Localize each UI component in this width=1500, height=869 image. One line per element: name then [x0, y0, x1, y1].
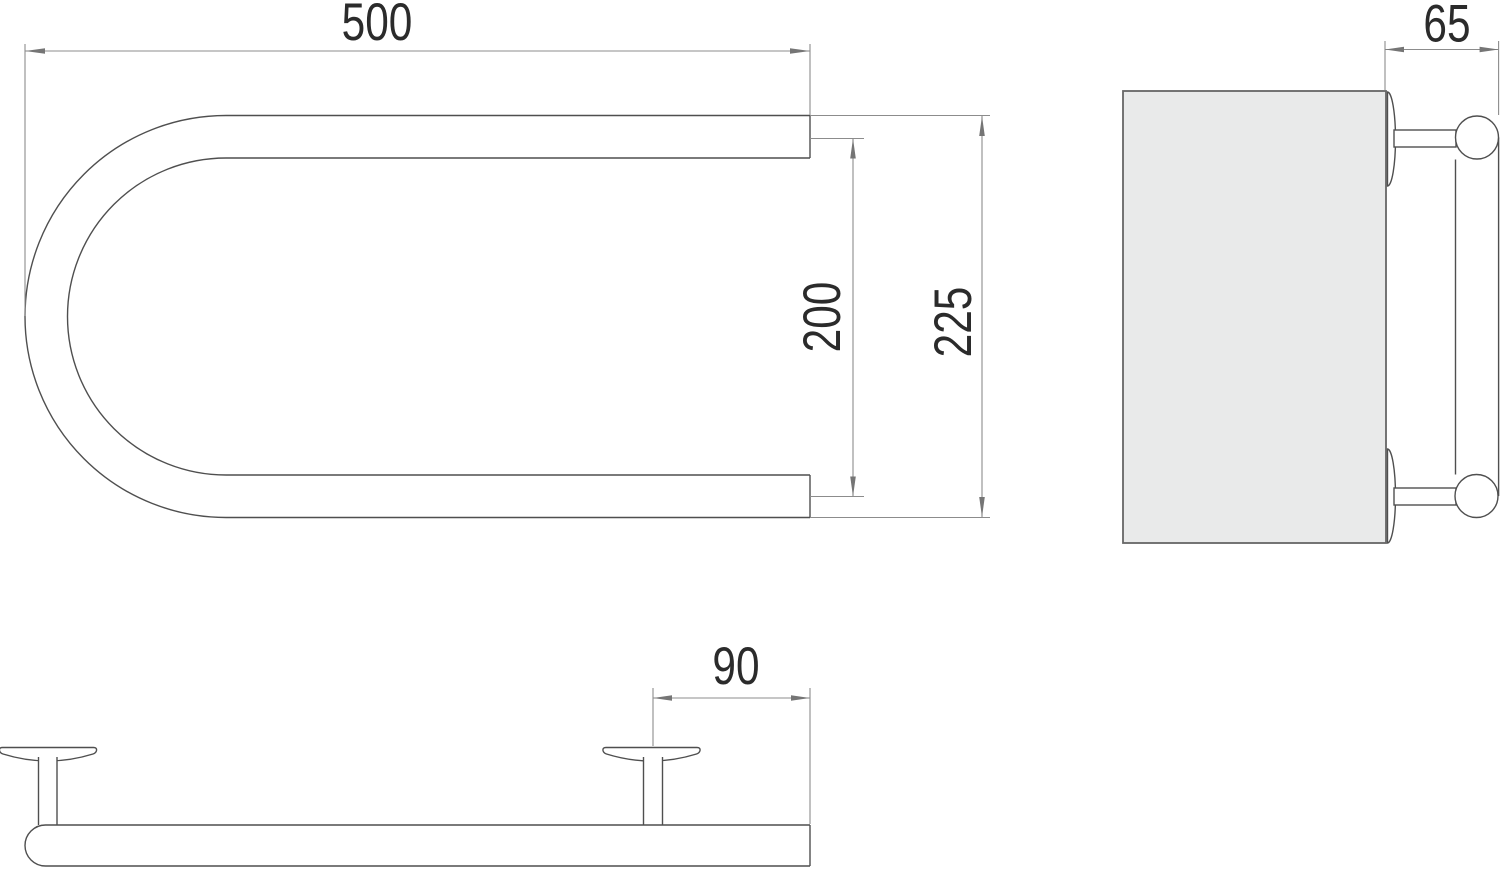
dim-offset-arrow-right: [1480, 47, 1499, 53]
dim-bracket-arrow-right: [791, 695, 810, 701]
bracket-stem-right-fill: [644, 756, 663, 825]
front-view: 90: [0, 638, 810, 866]
side-view: 65: [1123, 0, 1499, 543]
dim-height-arrow-top: [979, 116, 985, 136]
tube-section-bottom: [1455, 475, 1498, 518]
dim-axis-spacing: 200: [794, 139, 864, 497]
bracket-stem-bottom: [1394, 488, 1456, 505]
dim-height-arrow-bottom: [979, 497, 985, 517]
bracket-stem-left-fill: [39, 756, 58, 825]
wall-panel: [1123, 91, 1386, 543]
dim-label-axis-spacing: 200: [794, 282, 853, 353]
dim-axis-arrow-top: [850, 139, 856, 159]
dim-bracket-to-end: 90: [653, 638, 810, 824]
dim-offset-arrow-left: [1385, 47, 1404, 53]
dim-bracket-arrow-left: [653, 695, 672, 701]
tube-inner-edge: [68, 158, 811, 475]
dim-axis-arrow-bottom: [850, 477, 856, 497]
dim-label-overall-height: 225: [925, 287, 984, 358]
dim-label-bracket-to-end: 90: [712, 638, 759, 697]
dim-width-arrow-left: [25, 48, 45, 54]
towel-bar-outline: [25, 825, 810, 866]
dim-width-arrow-right: [790, 48, 810, 54]
tube-outer-edge: [25, 116, 810, 518]
dim-label-wall-offset: 65: [1423, 0, 1470, 54]
dim-wall-offset: 65: [1385, 0, 1499, 115]
drawing-sheet: 500 200 225: [0, 0, 1500, 869]
technical-drawing: 500 200 225: [0, 0, 1500, 869]
dim-label-width: 500: [342, 0, 413, 52]
bracket-stem-top: [1394, 130, 1456, 147]
tube-section-top: [1456, 116, 1499, 159]
plan-view: 500 200 225: [25, 0, 990, 517]
tube-bend-silhouette: [1456, 138, 1499, 497]
dim-width-extension-lines: [25, 44, 810, 316]
